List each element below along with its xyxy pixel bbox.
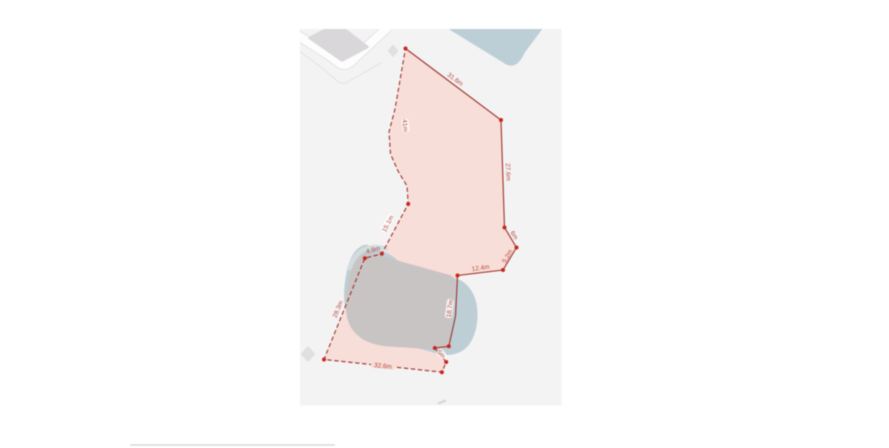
svg-text:27.6m: 27.6m bbox=[504, 163, 512, 181]
svg-text:41m: 41m bbox=[401, 119, 409, 132]
